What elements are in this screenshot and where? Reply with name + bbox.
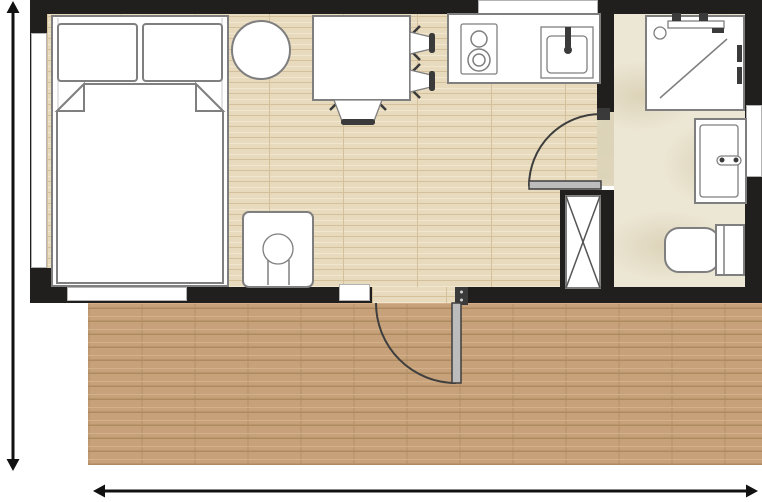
washbasin bbox=[695, 119, 746, 203]
two-burner-cooktop bbox=[461, 24, 497, 74]
washing-machine bbox=[243, 212, 313, 287]
width-dimension-arrow bbox=[93, 485, 758, 498]
dining-chair-right-2 bbox=[410, 64, 435, 98]
arrow-head-down-icon bbox=[7, 459, 20, 471]
height-dimension-arrow bbox=[7, 1, 20, 471]
shower-mixer-bar bbox=[668, 21, 724, 28]
technical-shaft bbox=[566, 196, 600, 288]
double-bed bbox=[52, 16, 228, 286]
pillow-right bbox=[143, 24, 222, 81]
arrow-head-left-icon bbox=[93, 485, 105, 498]
arrow-head-up-icon bbox=[7, 1, 20, 13]
entry-door-swing-arc bbox=[376, 303, 456, 383]
pillow-left bbox=[58, 24, 137, 81]
kitchen bbox=[448, 14, 600, 83]
dining-table bbox=[313, 16, 410, 100]
shower-door-hinge bbox=[737, 67, 742, 84]
shower-door-hinge bbox=[737, 45, 742, 62]
bathroom-door bbox=[529, 108, 610, 189]
shower-cabin bbox=[646, 13, 744, 110]
sink-faucet bbox=[565, 27, 571, 47]
entry-door-leaf bbox=[452, 303, 461, 383]
shower-head bbox=[654, 27, 666, 39]
round-table bbox=[232, 21, 290, 79]
duvet bbox=[57, 84, 223, 283]
toilet-bowl bbox=[665, 228, 719, 272]
floor-plan bbox=[0, 0, 762, 502]
entry-door bbox=[376, 287, 468, 383]
kitchen-sink bbox=[541, 27, 593, 78]
dining-chair-bottom bbox=[330, 100, 386, 125]
toilet-cistern bbox=[716, 225, 744, 275]
bathroom-door-swing-arc bbox=[529, 114, 601, 186]
toilet bbox=[665, 225, 744, 275]
dining-chair-right-1 bbox=[410, 26, 435, 60]
arrow-head-right-icon bbox=[746, 485, 758, 498]
bathroom-door-leaf bbox=[529, 181, 601, 189]
washing-machine-door bbox=[263, 234, 293, 264]
dining-set bbox=[313, 16, 435, 125]
plan-symbols-layer bbox=[0, 0, 762, 502]
